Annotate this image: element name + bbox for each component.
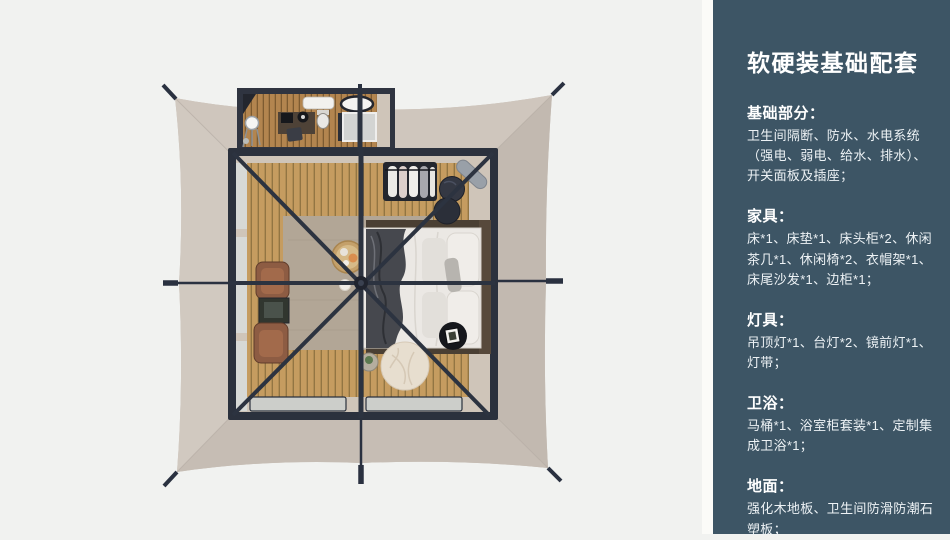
toilet: [317, 114, 329, 129]
section-heading: 卫浴：: [747, 392, 934, 413]
mirror-base: [243, 138, 249, 144]
mesh-window: [236, 163, 247, 229]
floorplan-panel: [0, 0, 702, 534]
bean-bag: [381, 342, 429, 390]
section-heading: 灯具：: [747, 309, 934, 330]
floorplan-illustration: [0, 0, 702, 534]
grinder-lid: [301, 115, 305, 119]
spec-sidebar: 软硬装基础配套 基础部分： 卫生间隔断、防水、水电系统（强电、弱电、给水、排水）…: [713, 0, 950, 534]
hub-cap: [358, 280, 364, 286]
photo: [448, 331, 456, 340]
plant: [365, 356, 373, 364]
section-heading: 地面：: [747, 475, 934, 496]
section-heading: 家具：: [747, 205, 934, 226]
section-heading: 基础部分：: [747, 102, 934, 123]
section-body: 马桶*1、浴室柜套装*1、定制集成卫浴*1；: [747, 416, 934, 456]
vanity-mirror: [246, 117, 259, 130]
hanging-garment: [399, 166, 407, 198]
floor-pouf: [440, 177, 465, 202]
section-body: 吊顶灯*1、台灯*2、镜前灯*1、灯带；: [747, 333, 934, 373]
bathtub-counter: [303, 97, 334, 109]
pillow: [422, 238, 446, 284]
section-furniture: 家具： 床*1、床垫*1、床头柜*2、休闲茶几*1、休闲椅*2、衣帽架*1、床尾…: [747, 205, 934, 289]
entrance-deck: [366, 397, 462, 411]
lounge-chair-1: [256, 262, 289, 299]
clothes-rack: [383, 162, 437, 201]
section-body: 床*1、床垫*1、床头柜*2、休闲茶几*1、休闲椅*2、衣帽架*1、床尾沙发*1…: [747, 229, 934, 289]
bathroom-wall-strip: [377, 94, 390, 147]
slide: 软硬装基础配套 基础部分： 卫生间隔断、防水、水电系统（强电、弱电、给水、排水）…: [0, 0, 950, 534]
section-bathroom: 卫浴： 马桶*1、浴室柜套装*1、定制集成卫浴*1；: [747, 392, 934, 456]
vanity-stool: [286, 127, 303, 142]
double-bed: [363, 220, 491, 354]
decor-tray: [439, 322, 467, 350]
lounge-chair-2: [254, 323, 288, 363]
section-lighting: 灯具： 吊顶灯*1、台灯*2、镜前灯*1、灯带；: [747, 309, 934, 373]
coffee-machine: [281, 113, 293, 123]
washbasin: [341, 97, 373, 112]
sidebar-title: 软硬装基础配套: [747, 44, 934, 78]
hanging-garment: [430, 167, 435, 197]
main-room: [228, 148, 498, 420]
side-shelf: [259, 298, 289, 323]
section-basics: 基础部分： 卫生间隔断、防水、水电系统（强电、弱电、给水、排水）、开关面板及插座…: [747, 102, 934, 186]
section-flooring: 地面： 强化木地板、卫生间防滑防潮石塑板；: [747, 475, 934, 539]
entrance-deck: [250, 397, 346, 411]
section-body: 卫生间隔断、防水、水电系统（强电、弱电、给水、排水）、开关面板及插座；: [747, 126, 934, 186]
hanging-garment: [420, 166, 428, 198]
bathroom-unit: [237, 88, 395, 152]
panel-divider: [702, 0, 713, 534]
